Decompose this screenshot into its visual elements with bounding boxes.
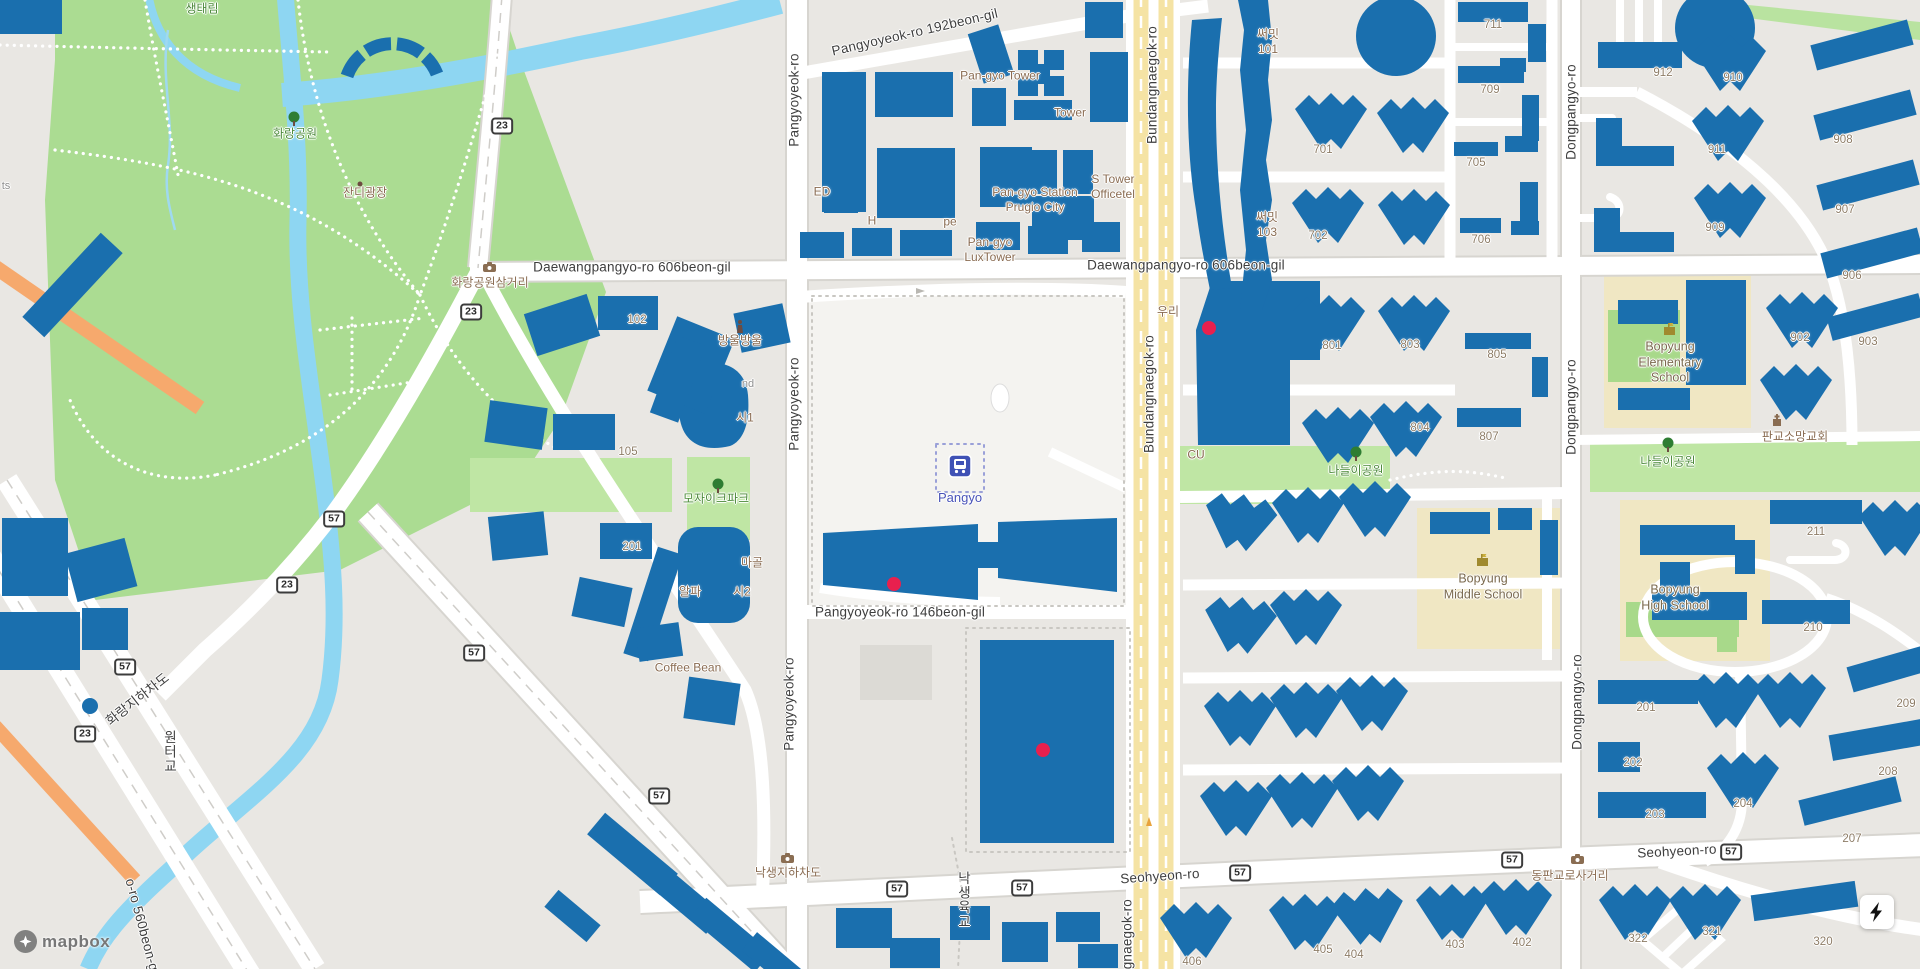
daewangpangyo-ro-road <box>470 264 1920 272</box>
building <box>1813 90 1916 141</box>
lightning-button[interactable] <box>1860 895 1894 929</box>
building <box>1598 742 1640 772</box>
building <box>800 232 844 258</box>
building <box>1002 922 1048 962</box>
map-base-layer <box>0 0 1920 969</box>
building <box>1457 408 1521 427</box>
building <box>1596 146 1674 166</box>
building <box>836 908 892 948</box>
building <box>733 303 790 353</box>
building <box>1686 280 1746 385</box>
building <box>1056 912 1100 942</box>
building <box>852 228 892 256</box>
apartment-building <box>1599 884 1671 940</box>
apartment-building <box>1204 690 1276 746</box>
red-marker <box>1036 743 1050 757</box>
building <box>0 612 80 670</box>
building <box>553 414 615 450</box>
building <box>1085 2 1123 38</box>
building <box>1829 717 1920 761</box>
building <box>635 622 683 662</box>
map-canvas[interactable]: mapbox Pangyoyeok-roPangyoyeok-roPangyoy… <box>0 0 1920 969</box>
apartment-building <box>1272 487 1344 543</box>
apartment-building <box>1339 481 1411 537</box>
building <box>950 906 990 940</box>
building <box>598 296 658 330</box>
building <box>1028 226 1068 254</box>
apartment-building <box>1416 884 1488 940</box>
apartment-building <box>1202 594 1279 656</box>
building <box>877 148 955 218</box>
building <box>976 222 1020 250</box>
building <box>1458 2 1528 22</box>
building <box>1798 776 1901 825</box>
building <box>1063 150 1093 194</box>
building <box>824 183 858 213</box>
building <box>1465 333 1531 349</box>
building <box>1770 500 1862 524</box>
lightning-bolt-icon <box>1866 901 1888 923</box>
building <box>972 88 1006 126</box>
apartment-building <box>1378 295 1450 351</box>
building <box>484 400 547 450</box>
apartment-building <box>1332 765 1404 821</box>
apartment-building <box>1859 500 1920 556</box>
building <box>571 577 632 627</box>
building <box>1540 520 1558 575</box>
apartment-building <box>1270 682 1342 738</box>
apartment-building <box>1378 189 1450 245</box>
attribution: mapbox <box>14 930 110 953</box>
apartment-building <box>1330 885 1407 947</box>
red-marker <box>887 577 901 591</box>
apartment-building <box>1336 675 1408 731</box>
building <box>1082 222 1120 252</box>
building <box>600 523 652 559</box>
building <box>1762 600 1850 624</box>
building <box>1816 160 1919 211</box>
red-marker <box>1202 321 1216 335</box>
apartment-building <box>1754 672 1826 728</box>
building <box>1640 525 1735 555</box>
building <box>980 147 1032 207</box>
apartment-building <box>1200 780 1272 836</box>
building <box>544 890 600 942</box>
building <box>1594 232 1674 252</box>
apartment-building <box>1766 292 1838 348</box>
building <box>1511 221 1539 235</box>
parking-lot <box>860 645 932 700</box>
building <box>1652 592 1747 620</box>
mapbox-wordmark[interactable]: mapbox <box>42 932 110 952</box>
building <box>683 677 740 726</box>
building <box>1460 218 1501 233</box>
building <box>1505 136 1538 152</box>
building <box>1532 357 1548 397</box>
apartment-building <box>1266 772 1338 828</box>
apartment-building <box>1377 97 1449 153</box>
building <box>1528 24 1546 62</box>
building <box>1430 512 1490 534</box>
building <box>1735 540 1755 574</box>
building <box>1618 300 1678 324</box>
mapbox-logo-icon[interactable] <box>14 930 37 953</box>
apartment-building <box>1292 187 1364 243</box>
building <box>900 230 952 256</box>
apartment-building <box>1694 182 1766 238</box>
apartment-building <box>1269 894 1341 950</box>
building <box>1598 792 1706 818</box>
building <box>890 938 940 968</box>
apartment-building <box>1295 93 1367 149</box>
building <box>1500 58 1526 72</box>
building <box>678 527 750 623</box>
green-strip-west <box>470 458 672 512</box>
nadeul-park-east <box>1590 438 1920 492</box>
building <box>1598 680 1698 704</box>
building <box>1090 52 1128 122</box>
building <box>1014 100 1072 120</box>
building <box>488 511 548 561</box>
building <box>1498 508 1532 530</box>
building <box>1030 64 1050 84</box>
apartment-building <box>1694 35 1766 91</box>
building <box>1598 42 1682 68</box>
building <box>1618 388 1690 410</box>
building <box>82 608 128 650</box>
building <box>2 518 68 596</box>
apartment-building <box>1760 364 1832 420</box>
building <box>875 72 953 117</box>
building <box>0 0 62 34</box>
building <box>1027 150 1057 194</box>
apartment-building <box>1270 589 1342 645</box>
apartment-building <box>1690 672 1762 728</box>
building <box>1522 95 1539 141</box>
building <box>1078 944 1118 968</box>
apartment-building <box>1480 879 1552 935</box>
building <box>980 640 1114 843</box>
building <box>1454 142 1498 156</box>
